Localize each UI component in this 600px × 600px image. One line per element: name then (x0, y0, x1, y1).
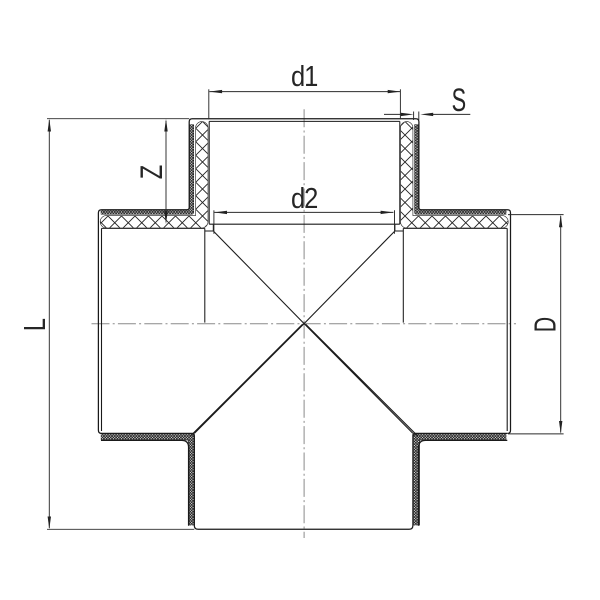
svg-text:d2: d2 (291, 181, 317, 214)
svg-text:d1: d1 (291, 60, 317, 93)
svg-text:Z: Z (134, 165, 169, 179)
svg-text:S: S (452, 82, 467, 118)
svg-text:D: D (528, 317, 563, 332)
svg-text:L: L (17, 318, 52, 331)
